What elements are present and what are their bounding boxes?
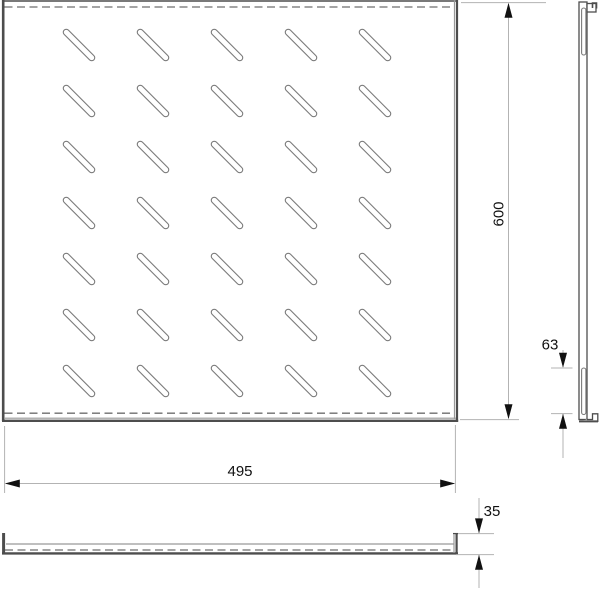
dim-width-label: 495 xyxy=(227,463,252,480)
side-view xyxy=(579,2,598,421)
top-view xyxy=(2,0,458,422)
arrowhead-down xyxy=(475,518,483,533)
arrowhead-up xyxy=(505,3,513,18)
vent-slot xyxy=(284,84,318,118)
vent-slot xyxy=(358,28,392,62)
vent-slot xyxy=(210,28,244,62)
top-view-slots xyxy=(62,28,392,398)
arrowhead-down xyxy=(559,353,567,368)
vent-slot xyxy=(210,308,244,342)
vent-slot xyxy=(136,364,170,398)
vent-slot xyxy=(284,28,318,62)
vent-slot xyxy=(210,84,244,118)
vent-slot xyxy=(358,364,392,398)
vent-slot xyxy=(136,196,170,230)
vent-slot xyxy=(136,308,170,342)
vent-slot xyxy=(62,84,96,118)
arrowhead-up xyxy=(559,414,567,429)
vent-slot xyxy=(284,364,318,398)
vent-slot xyxy=(210,364,244,398)
vent-slot xyxy=(358,140,392,174)
vent-slot xyxy=(358,84,392,118)
vent-slot xyxy=(358,196,392,230)
arrowhead-down xyxy=(505,404,513,419)
side-slot-top xyxy=(582,8,586,55)
dim-lip-height-label: 35 xyxy=(484,503,501,520)
technical-drawing: 600 495 63 35 xyxy=(0,0,600,589)
arrowhead-left xyxy=(5,480,20,488)
drawing-canvas: 600 495 63 35 xyxy=(0,0,600,589)
vent-slot xyxy=(284,308,318,342)
arrowhead-right xyxy=(440,480,455,488)
side-top-tab xyxy=(587,4,596,13)
vent-slot xyxy=(136,252,170,286)
vent-slot xyxy=(136,140,170,174)
vent-slot xyxy=(210,140,244,174)
dimension-width: 495 xyxy=(5,425,456,493)
dimension-slot-length: 63 xyxy=(542,337,573,459)
dimension-depth: 600 xyxy=(460,3,546,420)
vent-slot xyxy=(62,196,96,230)
side-slot-bottom xyxy=(582,368,586,415)
vent-slot xyxy=(358,252,392,286)
vent-slot xyxy=(284,140,318,174)
arrowhead-up xyxy=(475,555,483,570)
vent-slot xyxy=(136,84,170,118)
vent-slot xyxy=(62,28,96,62)
side-rail xyxy=(579,2,587,420)
vent-slot xyxy=(358,308,392,342)
vent-slot xyxy=(210,196,244,230)
dim-slot-length-label: 63 xyxy=(542,337,559,354)
vent-slot xyxy=(210,252,244,286)
dimension-lip-height: 35 xyxy=(456,498,500,588)
front-view xyxy=(2,533,458,555)
dim-depth-label: 600 xyxy=(491,201,508,226)
vent-slot xyxy=(284,252,318,286)
vent-slot xyxy=(136,28,170,62)
vent-slot xyxy=(62,252,96,286)
vent-slot xyxy=(62,308,96,342)
vent-slot xyxy=(62,140,96,174)
vent-slot xyxy=(62,364,96,398)
vent-slot xyxy=(284,196,318,230)
